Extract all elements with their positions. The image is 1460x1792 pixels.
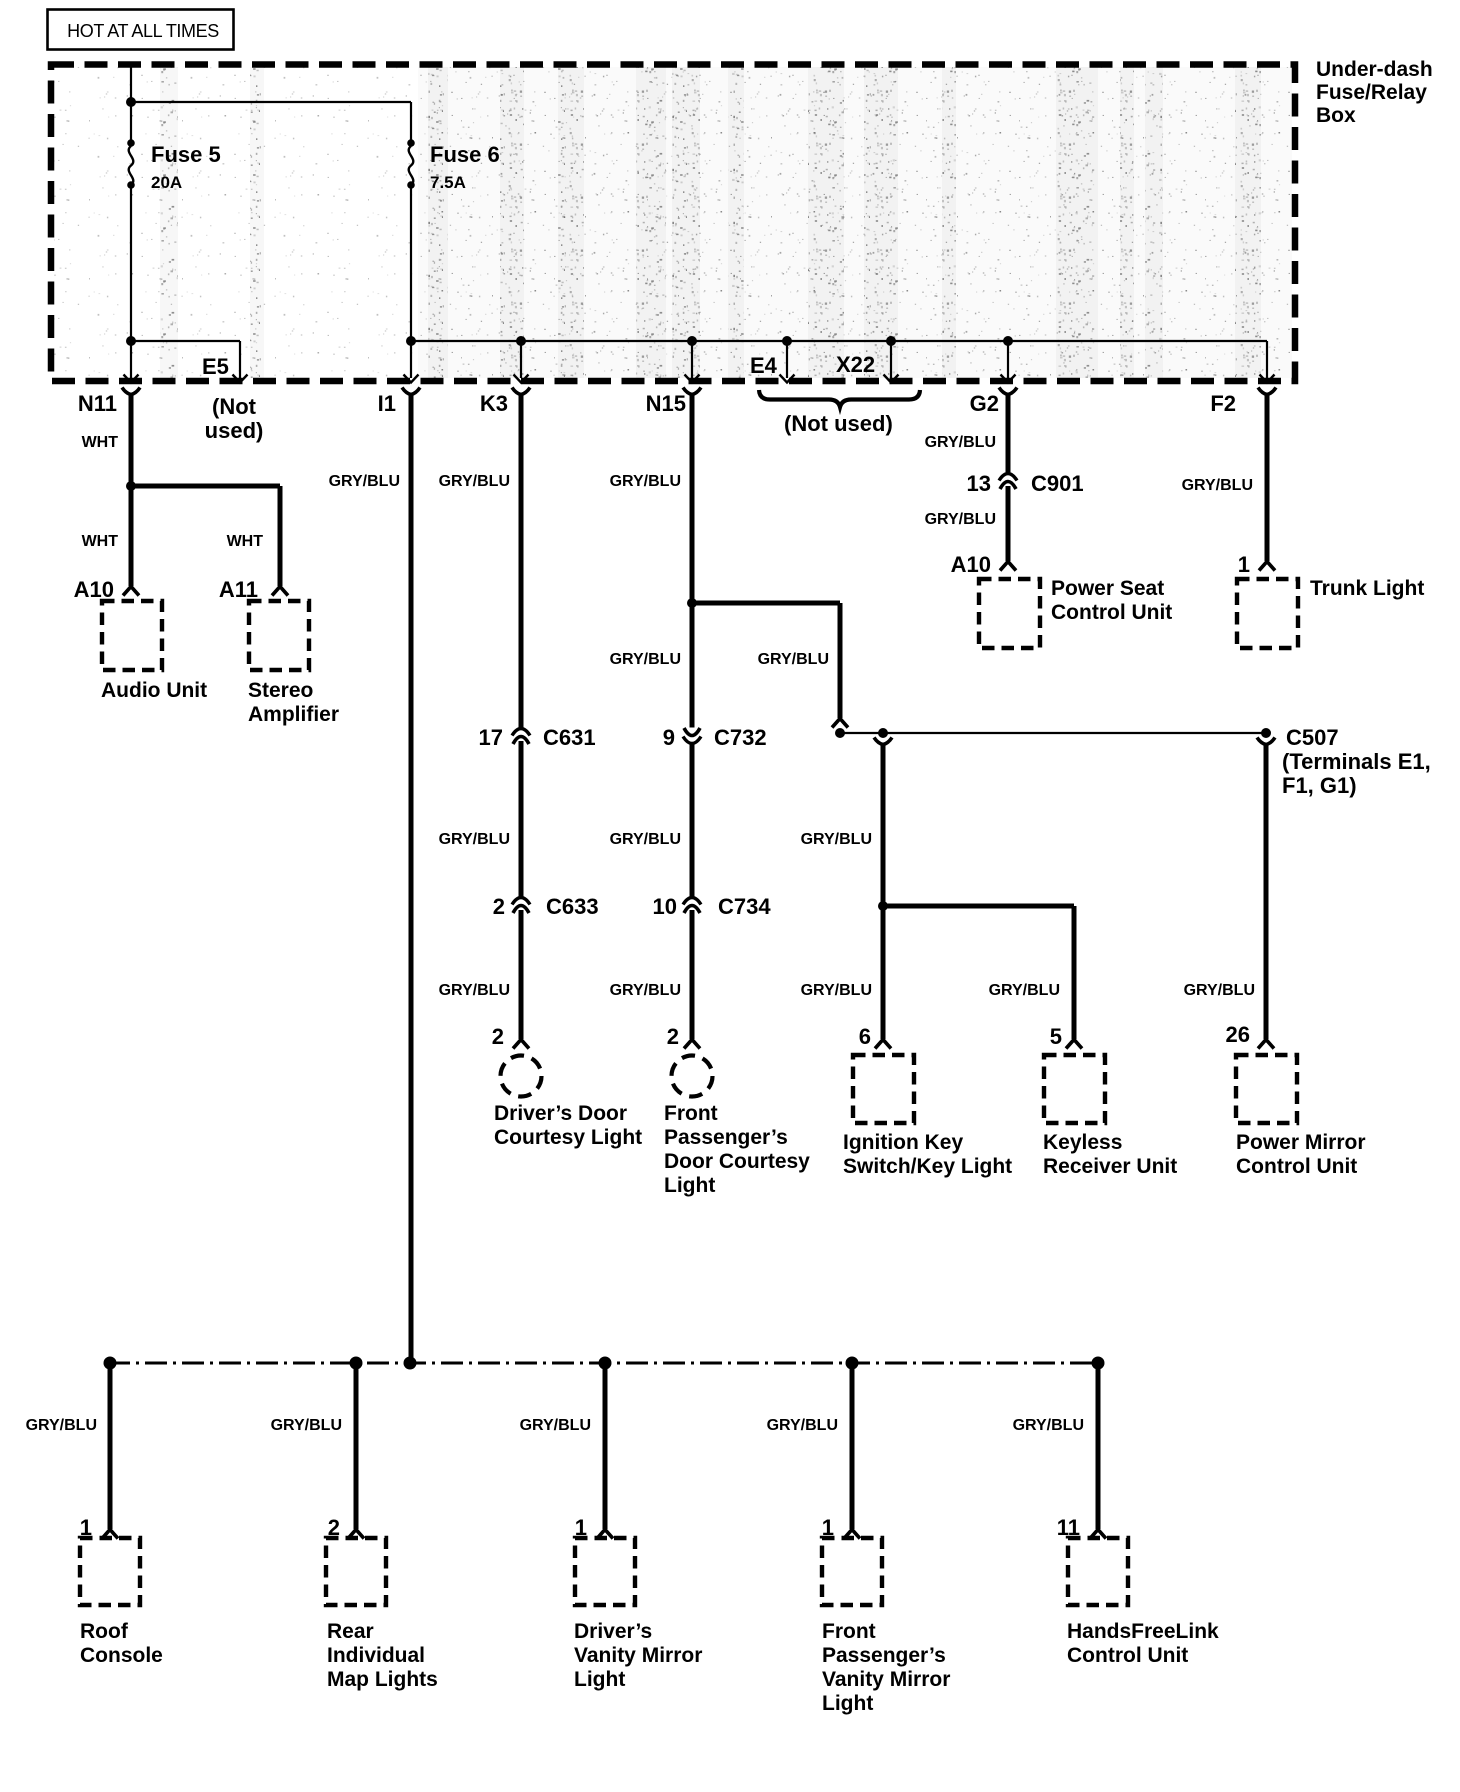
svg-text:Audio Unit: Audio Unit (101, 679, 207, 702)
svg-text:E4: E4 (750, 353, 778, 378)
svg-text:Receiver Unit: Receiver Unit (1043, 1155, 1177, 1178)
svg-text:GRY/BLU: GRY/BLU (610, 982, 681, 999)
svg-text:Driver’s: Driver’s (574, 1620, 652, 1643)
svg-text:Amplifier: Amplifier (248, 703, 339, 726)
svg-text:GRY/BLU: GRY/BLU (439, 831, 510, 848)
svg-text:E5: E5 (202, 354, 229, 379)
svg-text:F1, G1): F1, G1) (1282, 773, 1357, 798)
svg-text:Fuse 6: Fuse 6 (430, 142, 500, 167)
svg-text:GRY/BLU: GRY/BLU (1182, 477, 1253, 494)
svg-text:Control Unit: Control Unit (1051, 601, 1172, 624)
svg-text:9: 9 (663, 725, 675, 750)
svg-text:GRY/BLU: GRY/BLU (439, 473, 510, 490)
svg-text:(Not used): (Not used) (784, 411, 893, 436)
svg-text:2: 2 (493, 894, 505, 919)
svg-text:Door Courtesy: Door Courtesy (664, 1150, 810, 1173)
svg-text:GRY/BLU: GRY/BLU (610, 473, 681, 490)
svg-text:Map Lights: Map Lights (327, 1668, 438, 1691)
svg-text:GRY/BLU: GRY/BLU (801, 831, 872, 848)
svg-text:2: 2 (667, 1024, 679, 1049)
svg-text:Driver’s Door: Driver’s Door (494, 1102, 627, 1125)
svg-text:C631: C631 (543, 725, 596, 750)
svg-text:Switch/Key Light: Switch/Key Light (843, 1155, 1012, 1178)
svg-text:GRY/BLU: GRY/BLU (925, 434, 996, 451)
svg-text:Passenger’s: Passenger’s (822, 1644, 946, 1667)
svg-text:Roof: Roof (80, 1620, 129, 1643)
svg-text:C732: C732 (714, 725, 767, 750)
svg-text:Front: Front (822, 1620, 876, 1643)
svg-text:Individual: Individual (327, 1644, 425, 1667)
svg-text:7.5A: 7.5A (430, 173, 466, 192)
svg-text:GRY/BLU: GRY/BLU (1184, 982, 1255, 999)
svg-text:C901: C901 (1031, 471, 1084, 496)
svg-text:(Terminals E1,: (Terminals E1, (1282, 749, 1431, 774)
svg-text:WHT: WHT (227, 533, 264, 550)
svg-text:Vanity Mirror: Vanity Mirror (574, 1644, 702, 1667)
svg-text:Trunk Light: Trunk Light (1310, 577, 1424, 600)
svg-text:Box: Box (1316, 104, 1356, 127)
svg-text:Front: Front (664, 1102, 718, 1125)
svg-text:A11: A11 (219, 577, 258, 602)
svg-text:10: 10 (653, 894, 677, 919)
svg-text:GRY/BLU: GRY/BLU (610, 651, 681, 668)
svg-text:Vanity Mirror: Vanity Mirror (822, 1668, 950, 1691)
svg-text:GRY/BLU: GRY/BLU (925, 511, 996, 528)
svg-text:Rear: Rear (327, 1620, 374, 1643)
svg-text:GRY/BLU: GRY/BLU (1013, 1417, 1084, 1434)
svg-text:F2: F2 (1210, 391, 1236, 416)
svg-text:A10: A10 (74, 577, 114, 602)
svg-text:5: 5 (1050, 1024, 1062, 1049)
svg-text:GRY/BLU: GRY/BLU (610, 831, 681, 848)
svg-text:Ignition Key: Ignition Key (843, 1131, 963, 1154)
svg-text:N11: N11 (78, 391, 117, 416)
svg-text:GRY/BLU: GRY/BLU (329, 473, 400, 490)
svg-text:2: 2 (492, 1024, 504, 1049)
svg-text:N15: N15 (646, 391, 686, 416)
svg-text:1: 1 (1238, 552, 1250, 577)
svg-text:6: 6 (859, 1024, 871, 1049)
svg-text:Control Unit: Control Unit (1067, 1644, 1188, 1667)
svg-text:used): used) (205, 418, 264, 443)
svg-text:GRY/BLU: GRY/BLU (520, 1417, 591, 1434)
svg-text:Light: Light (664, 1174, 715, 1197)
svg-text:A10: A10 (951, 552, 991, 577)
svg-text:C507: C507 (1286, 725, 1339, 750)
svg-text:Keyless: Keyless (1043, 1131, 1122, 1154)
svg-text:17: 17 (479, 725, 503, 750)
svg-text:Passenger’s: Passenger’s (664, 1126, 788, 1149)
svg-text:GRY/BLU: GRY/BLU (801, 982, 872, 999)
svg-text:C633: C633 (546, 894, 599, 919)
svg-text:Courtesy Light: Courtesy Light (494, 1126, 642, 1149)
svg-text:GRY/BLU: GRY/BLU (271, 1417, 342, 1434)
svg-text:WHT: WHT (82, 533, 119, 550)
svg-text:GRY/BLU: GRY/BLU (767, 1417, 838, 1434)
svg-text:Control Unit: Control Unit (1236, 1155, 1357, 1178)
svg-text:HandsFreeLink: HandsFreeLink (1067, 1620, 1219, 1643)
svg-text:26: 26 (1226, 1022, 1250, 1047)
svg-text:Light: Light (822, 1692, 873, 1715)
svg-text:X22: X22 (836, 352, 875, 377)
svg-text:Power Mirror: Power Mirror (1236, 1131, 1366, 1154)
svg-text:Under-dash: Under-dash (1316, 58, 1433, 81)
svg-text:HOT AT ALL TIMES: HOT AT ALL TIMES (67, 21, 219, 41)
svg-text:WHT: WHT (82, 434, 119, 451)
svg-text:(Not: (Not (212, 394, 257, 419)
svg-text:GRY/BLU: GRY/BLU (989, 982, 1060, 999)
svg-text:20A: 20A (151, 173, 182, 192)
svg-text:GRY/BLU: GRY/BLU (758, 651, 829, 668)
svg-text:I1: I1 (378, 391, 396, 416)
svg-text:K3: K3 (480, 391, 508, 416)
svg-text:Fuse/Relay: Fuse/Relay (1316, 81, 1427, 104)
svg-text:G2: G2 (970, 391, 999, 416)
svg-text:Stereo: Stereo (248, 679, 313, 702)
svg-text:Power Seat: Power Seat (1051, 577, 1164, 600)
svg-text:13: 13 (967, 471, 991, 496)
svg-text:Console: Console (80, 1644, 163, 1667)
svg-text:Fuse 5: Fuse 5 (151, 142, 221, 167)
svg-text:Light: Light (574, 1668, 625, 1691)
svg-text:C734: C734 (718, 894, 771, 919)
svg-text:GRY/BLU: GRY/BLU (26, 1417, 97, 1434)
svg-text:GRY/BLU: GRY/BLU (439, 982, 510, 999)
